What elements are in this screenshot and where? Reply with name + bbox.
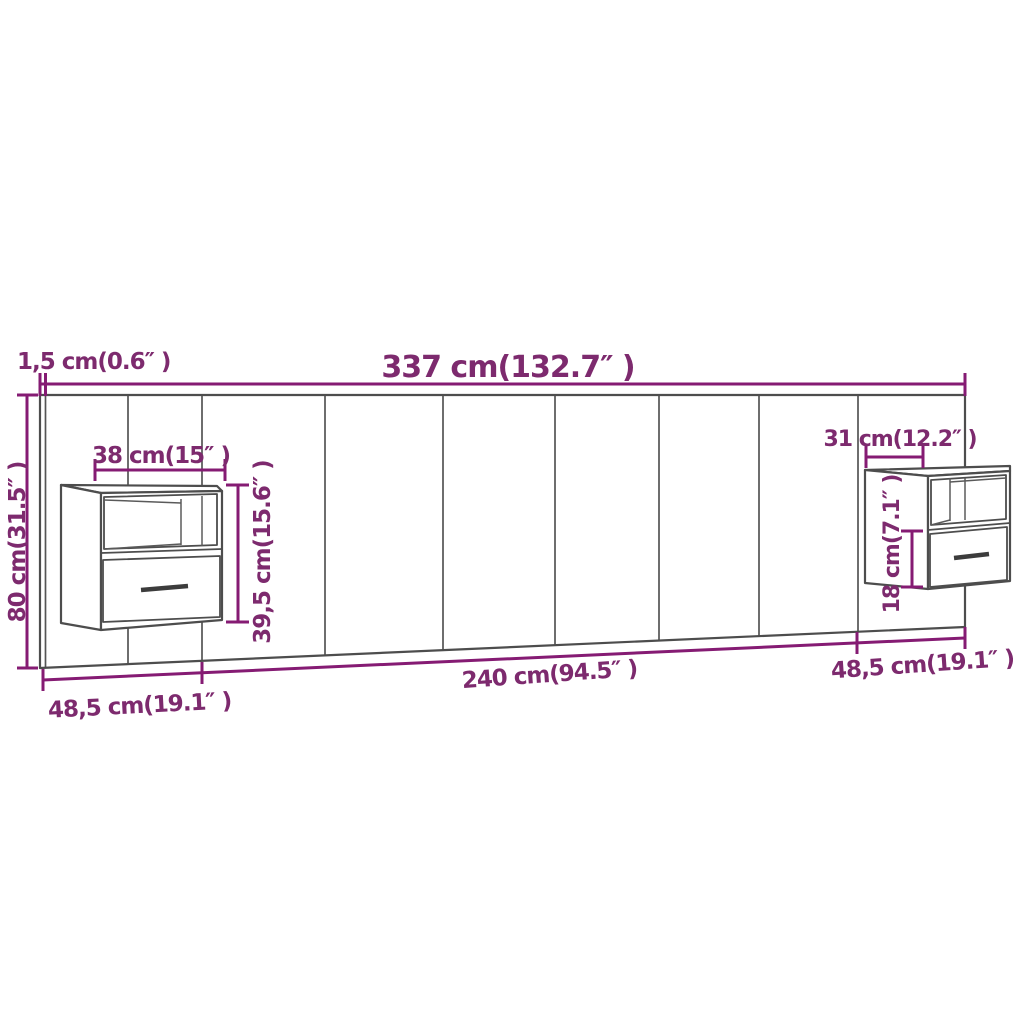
label-side-thickness: 1,5 cm(0.6″ )	[17, 349, 170, 375]
label-base-left-segment: 48,5 cm(19.1″ )	[47, 688, 232, 724]
headboard-bottom-edge	[40, 627, 965, 668]
label-total-width: 337 cm(132.7″ )	[381, 350, 634, 385]
left-cabinet-side-face	[61, 485, 101, 630]
dimension-diagram-canvas: 337 cm(132.7″ ) 1,5 cm(0.6″ ) 80 cm(31.5…	[0, 0, 1024, 1024]
label-left-unit-width: 38 cm(15″ )	[92, 443, 230, 469]
label-right-unit-lower-height: 18 cm(7.1″ )	[880, 475, 905, 614]
label-base-center-segment: 240 cm(94.5″ )	[461, 656, 638, 694]
left-cabinet-front-face	[101, 491, 222, 630]
label-left-unit-height: 39,5 cm(15.6″ )	[250, 460, 276, 643]
headboard-dimension-drawing: 337 cm(132.7″ ) 1,5 cm(0.6″ ) 80 cm(31.5…	[0, 0, 1024, 1024]
label-right-unit-width: 31 cm(12.2″ )	[823, 427, 976, 452]
dim-left-unit-height	[226, 485, 249, 622]
label-total-height: 80 cm(31.5″ )	[5, 462, 31, 623]
left-cabinet	[61, 485, 222, 630]
